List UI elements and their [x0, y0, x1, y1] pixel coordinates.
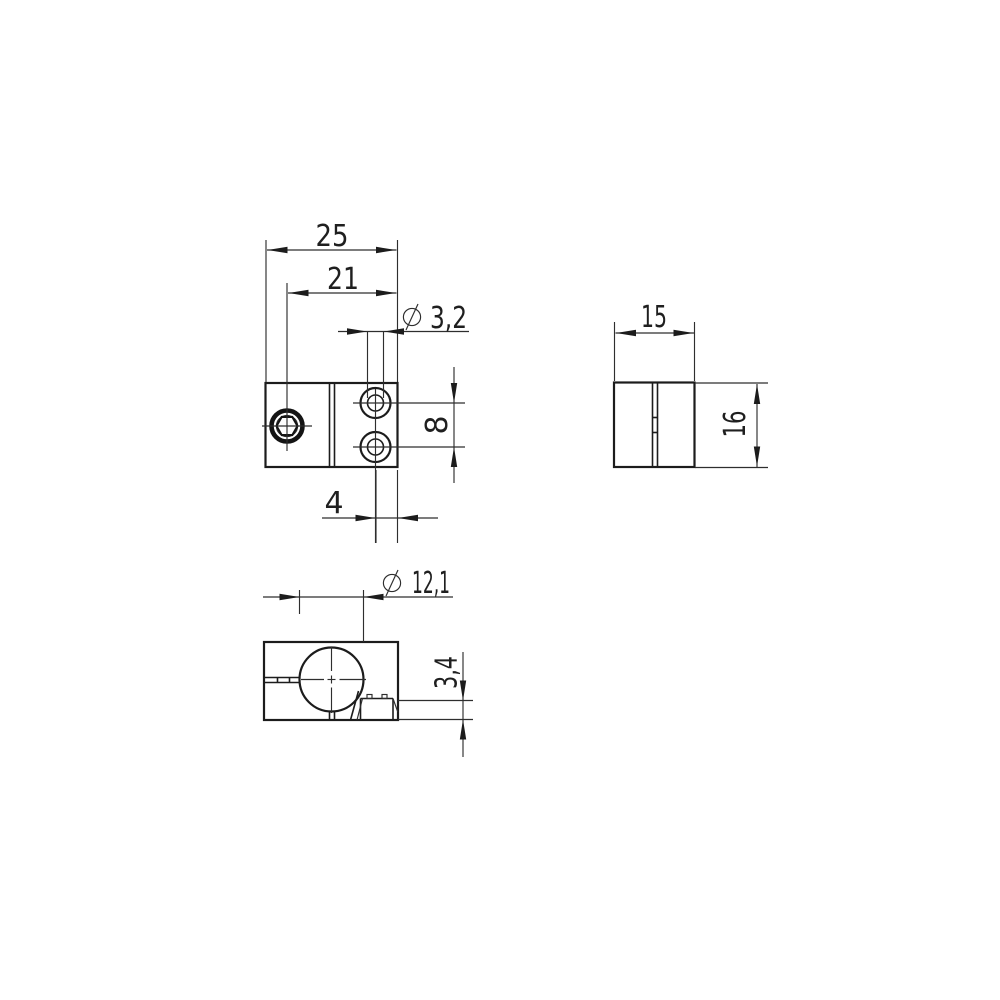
arrowhead-right-icon	[376, 247, 396, 253]
dimension-value: 12,1	[412, 566, 450, 601]
dimension-value: 21	[327, 262, 359, 297]
arrowhead-left-icon	[268, 247, 288, 253]
bottom-view	[264, 642, 398, 720]
dimension-hole-to-edge: 4	[322, 470, 438, 543]
dimension-block-height: 16	[695, 383, 768, 468]
dimension-value: 25	[316, 219, 349, 254]
dimension-hole-spacing: 8	[420, 367, 457, 483]
arrowhead-left-icon	[280, 594, 300, 600]
dimension-pocket-depth: 3,4	[398, 652, 473, 757]
arrowhead-left-icon	[356, 515, 376, 521]
arrowhead-right-icon	[674, 330, 694, 336]
arrowhead-left-icon	[289, 290, 309, 296]
arrowhead-right-icon	[376, 290, 396, 296]
technical-drawing: 25 21 3,2 8 4	[0, 0, 1000, 1000]
clamp-pocket	[351, 691, 398, 720]
dimension-value: 8	[420, 415, 455, 434]
dimension-value: 16	[718, 411, 753, 438]
arrowhead-top-icon	[754, 384, 760, 404]
dimension-value: 15	[641, 300, 667, 335]
arrowhead-left-icon	[616, 330, 636, 336]
arrowhead-bottom-icon	[451, 447, 457, 467]
arrowhead-bottom-icon	[754, 447, 760, 467]
dimension-value: 3,4	[430, 656, 465, 689]
dimension-bore-diameter: 12,1	[263, 566, 453, 642]
arrowhead-bottom-icon	[460, 720, 466, 740]
side-view	[614, 383, 695, 468]
diameter-symbol-icon	[403, 304, 420, 330]
arrowhead-right-icon	[364, 594, 384, 600]
dimension-value: 4	[324, 486, 343, 521]
side-view-outline	[614, 383, 695, 468]
dimension-side-depth: 15	[615, 300, 695, 381]
dimension-front-width: 25	[266, 219, 398, 382]
arrowhead-left-icon	[347, 328, 367, 334]
dimension-value: 3,2	[430, 301, 467, 336]
arrowhead-right-icon	[384, 328, 404, 334]
diameter-symbol-icon	[383, 570, 400, 596]
clamp-screw-head	[262, 283, 312, 451]
arrowhead-right-icon	[398, 515, 418, 521]
dimension-screw-to-edge: 21	[288, 262, 397, 297]
arrowhead-top-icon	[451, 383, 457, 403]
drawing-canvas: 25 21 3,2 8 4	[0, 0, 1000, 1000]
